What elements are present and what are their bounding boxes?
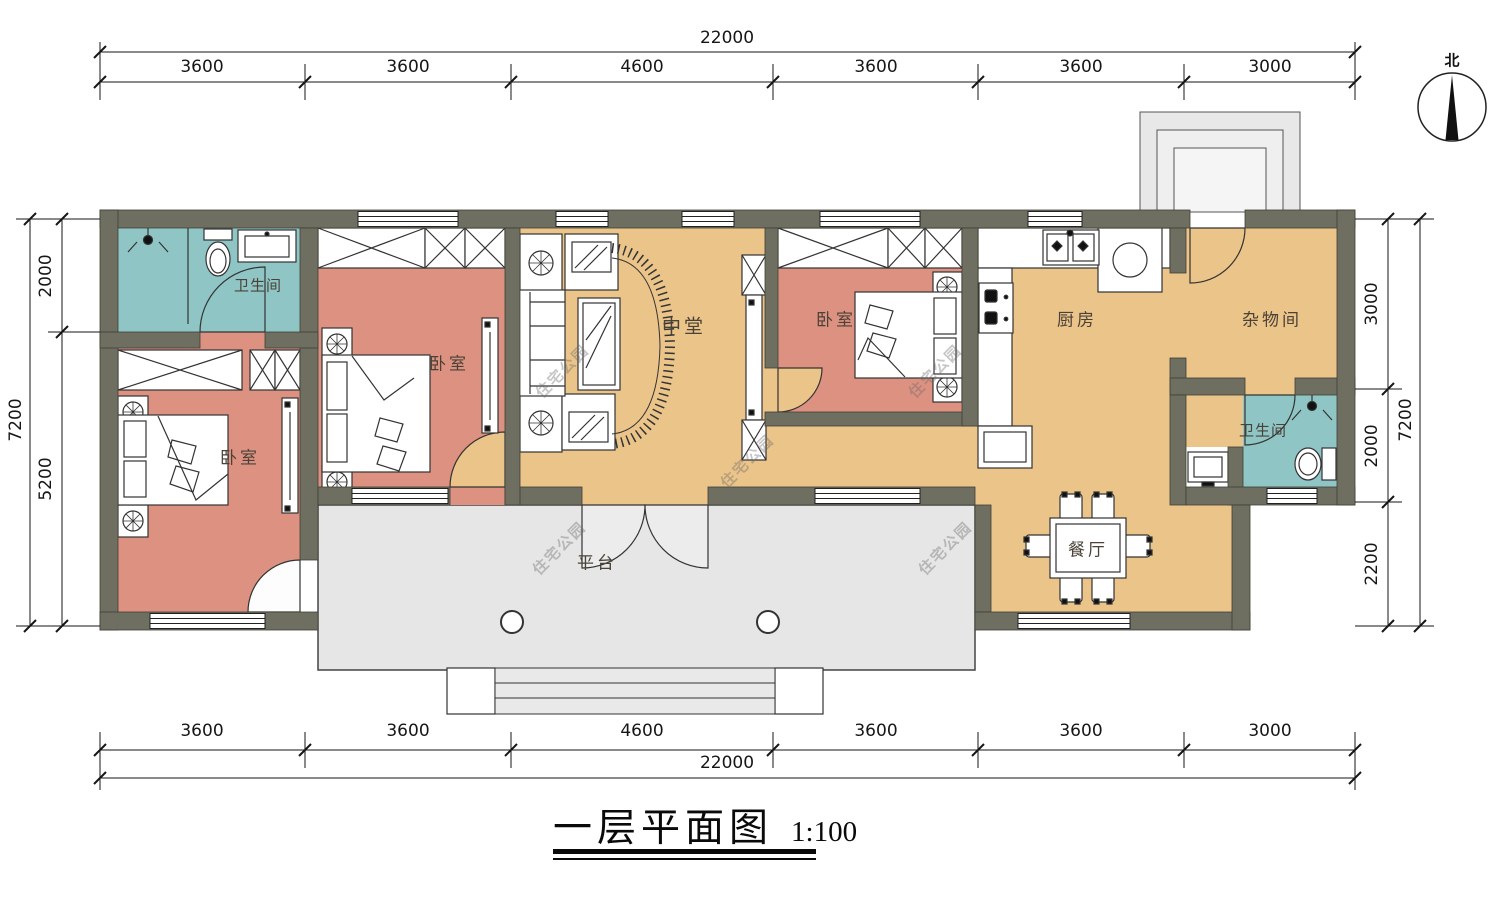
dim-top-seg-4: 3600 [854,57,897,77]
dim-top-seg-1: 3600 [180,57,223,77]
dim-bottom-total: 22000 [700,753,754,773]
wardrobe [118,350,300,390]
floor-plan-page: 卫生间 卧室 卧室 中堂 卧室 厨房 杂物间 卫生间 餐厅 平台 住宅公园 住宅… [0,0,1500,907]
window [556,212,608,227]
dim-bottom-seg-2: 3600 [386,721,429,741]
back-porch-steps [1140,112,1300,212]
toilet-icon [204,229,232,276]
tv-cabinet [482,318,498,433]
dim-top-seg-5: 3600 [1059,57,1102,77]
window [358,212,458,227]
room-label-kitchen: 厨房 [1057,306,1097,331]
room-label-bedroom-right: 卧室 [816,306,856,331]
window [1018,614,1130,629]
wardrobe [778,228,962,268]
window [1028,212,1082,227]
north-label: 北 [1444,50,1459,71]
window [682,212,734,227]
room-label-bedroom-middle: 卧室 [429,350,469,375]
room-label-dining: 餐厅 [1068,536,1108,561]
dim-right-seg-2: 2000 [1362,424,1382,467]
room-label-platform: 平台 [577,549,617,574]
title-scale: 1:100 [791,816,857,849]
window [352,489,448,504]
dim-left-seg-1: 2000 [36,254,56,297]
room-label-bathroom-right: 卫生间 [1239,420,1287,441]
vanity-icon [1188,452,1228,486]
room-label-bedroom-left: 卧室 [220,444,260,469]
title-underline-thin [553,858,816,860]
north-compass-icon [1418,73,1486,141]
coffee-table [578,298,620,390]
window [820,212,920,227]
tv-cabinet [282,398,298,513]
window [815,489,920,504]
bed [118,415,228,505]
dim-right-seg-1: 3000 [1362,282,1382,325]
stove-icon [979,283,1013,333]
room-label-bathroom-left: 卫生间 [234,275,282,296]
dim-bottom-seg-1: 3600 [180,721,223,741]
platform-area [318,505,975,714]
dim-bottom-seg-3: 4600 [620,721,663,741]
kitchen-sink-icon [1043,230,1099,265]
dim-bottom-seg-4: 3600 [854,721,897,741]
title-text: 一层平面图 [553,797,773,853]
room-label-hall: 中堂 [662,312,706,339]
dim-top-seg-3: 4600 [620,57,663,77]
window [150,614,265,629]
dim-right-seg-3: 2200 [1362,542,1382,585]
drawing-title: 一层平面图 1:100 [553,797,857,853]
window [1267,489,1317,504]
dim-bottom-seg-5: 3600 [1059,721,1102,741]
title-underline-thick [553,849,816,854]
bed [322,355,430,472]
dim-top-seg-6: 3000 [1248,57,1291,77]
room-label-storage: 杂物间 [1242,306,1302,331]
dim-top-seg-2: 3600 [386,57,429,77]
toilet-icon [1295,448,1336,480]
wardrobe [318,228,505,268]
dim-left-total: 7200 [6,398,26,441]
dim-right-total: 7200 [1396,398,1416,441]
dim-left-seg-2: 5200 [36,457,56,500]
dim-bottom-seg-6: 3000 [1248,721,1291,741]
dim-top-total: 22000 [700,28,754,48]
sink-icon [238,230,296,262]
